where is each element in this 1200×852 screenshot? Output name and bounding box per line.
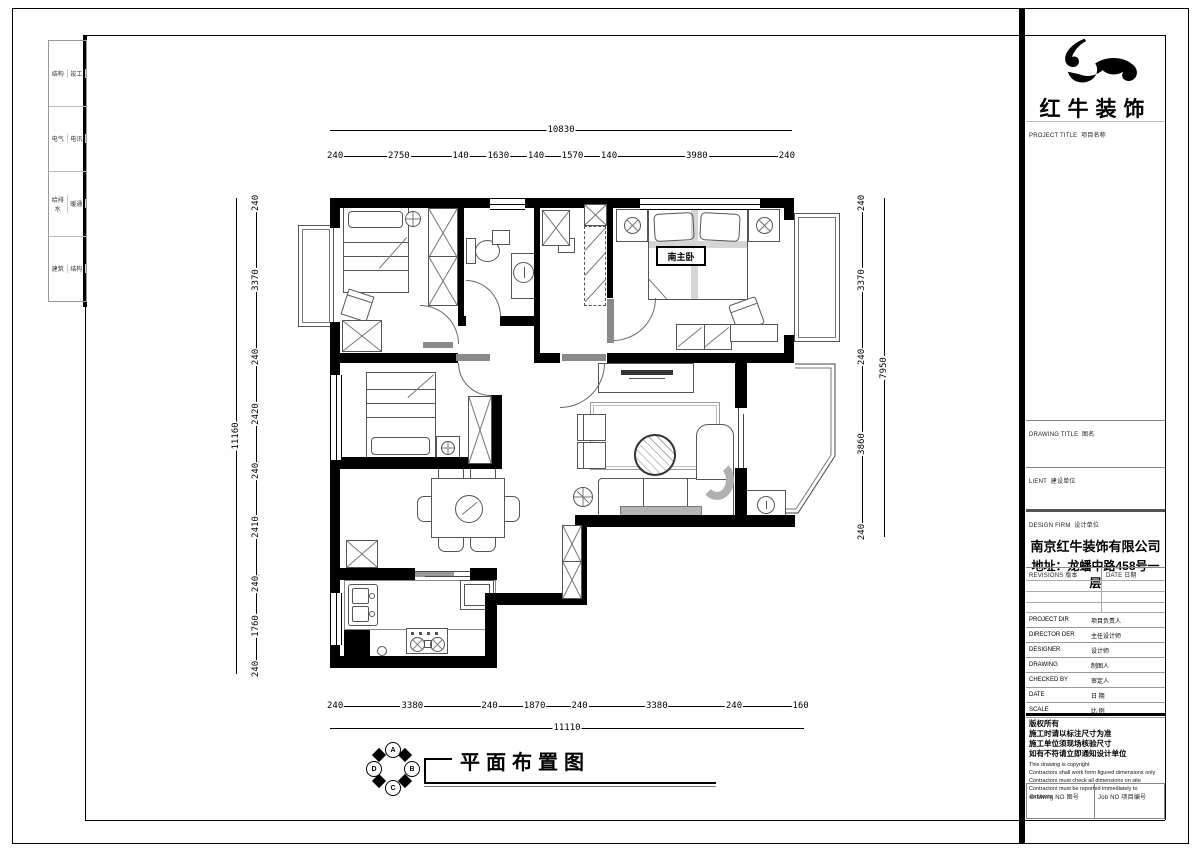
drawing-sheet: { "sheet": { "drawing_title": "平面布置图", "… bbox=[0, 0, 1200, 852]
title-block: 红牛装饰 PROJECT TITLE 项目名称 DRAWING TITLE 图名… bbox=[1026, 35, 1165, 820]
dimension-value: 240 bbox=[480, 701, 498, 711]
room-label-master: 南主卧 bbox=[656, 246, 706, 266]
dimension-value: 240 bbox=[857, 523, 867, 541]
dimension-value: 1870 bbox=[523, 701, 547, 711]
cabinet bbox=[584, 204, 607, 226]
signature-row: DRAWING制图人 bbox=[1026, 658, 1165, 673]
armchair-living bbox=[577, 442, 606, 469]
dimension-value: 240 bbox=[857, 348, 867, 366]
compass-icon: A B C D bbox=[366, 742, 420, 796]
wall-segment bbox=[534, 353, 560, 363]
floor-plan: 南主卧 bbox=[0, 0, 1200, 852]
wall-segment bbox=[607, 208, 613, 298]
window bbox=[330, 593, 342, 645]
cabinet bbox=[342, 320, 382, 352]
signature-row: PROJECT DIR项目负责人 bbox=[1026, 613, 1165, 628]
title-underline-2 bbox=[424, 786, 716, 787]
armchair-living bbox=[577, 414, 606, 441]
tv-cabinet bbox=[598, 363, 694, 393]
dimension-value: 2420 bbox=[251, 402, 261, 426]
wall-segment bbox=[458, 208, 464, 326]
title-underline bbox=[424, 782, 716, 784]
dimension-value: 240 bbox=[326, 151, 344, 161]
gas-stove bbox=[406, 628, 448, 654]
window bbox=[640, 198, 760, 210]
sliding-door bbox=[415, 571, 470, 572]
window bbox=[330, 375, 342, 460]
dimension-value: 3370 bbox=[251, 268, 261, 292]
wall-segment bbox=[470, 568, 497, 580]
cabinet bbox=[562, 561, 582, 599]
date-column-label: DATE 日期 bbox=[1102, 568, 1137, 580]
dimension-value: 140 bbox=[600, 151, 618, 161]
nightstand-right bbox=[748, 209, 780, 242]
wall-segment bbox=[330, 656, 497, 668]
sliding-door bbox=[425, 576, 470, 577]
wall-segment bbox=[525, 198, 640, 208]
dining-chair bbox=[503, 496, 520, 522]
dresser-master bbox=[676, 324, 732, 350]
entry-tall-cabinet-dashed bbox=[584, 226, 606, 306]
coffee-table bbox=[634, 434, 676, 476]
dimension-value: 1570 bbox=[561, 151, 585, 161]
sliding-door bbox=[738, 408, 739, 468]
door-sill bbox=[456, 354, 490, 361]
dimension-value: 240 bbox=[778, 151, 796, 161]
dimension-total-value: 11110 bbox=[552, 723, 581, 733]
sliding-door bbox=[743, 414, 744, 468]
dimension-value: 240 bbox=[251, 194, 261, 212]
dimension-value: 140 bbox=[527, 151, 545, 161]
revision-row bbox=[1026, 591, 1165, 602]
door-sill bbox=[562, 354, 606, 361]
dimension-value: 240 bbox=[251, 574, 261, 592]
cabinet bbox=[346, 540, 378, 568]
dimension-value: 240 bbox=[251, 660, 261, 678]
cabinet bbox=[428, 256, 458, 306]
dimension-value: 1760 bbox=[251, 614, 261, 638]
floor-drain-icon bbox=[377, 646, 387, 656]
cabinet bbox=[428, 208, 458, 258]
dimension-total-value: 7950 bbox=[879, 356, 889, 380]
sheet-title: 平面布置图 bbox=[460, 746, 590, 775]
wall-segment bbox=[458, 316, 466, 326]
dimension-value: 240 bbox=[251, 461, 261, 479]
dresser-shelf-master bbox=[730, 324, 778, 342]
signature-row: DESIGNER设计师 bbox=[1026, 643, 1165, 658]
dimension-value: 2410 bbox=[251, 515, 261, 539]
window bbox=[490, 198, 525, 210]
wall-segment bbox=[607, 353, 794, 363]
wall-segment bbox=[330, 353, 458, 363]
brand-name: 红牛装饰 bbox=[1026, 93, 1165, 123]
revision-row bbox=[1026, 602, 1165, 613]
sofa-arm-curve bbox=[700, 460, 734, 500]
dimension-value: 240 bbox=[725, 701, 743, 711]
wall-segment bbox=[583, 515, 795, 527]
wall-segment bbox=[330, 198, 490, 208]
dimension-value: 3380 bbox=[400, 701, 424, 711]
dimension-value: 240 bbox=[251, 348, 261, 366]
title-corner-mark bbox=[424, 758, 452, 784]
revision-row bbox=[1026, 580, 1165, 591]
dimension-value: 3370 bbox=[857, 268, 867, 292]
door-sill bbox=[423, 342, 453, 348]
signature-rows: PROJECT DIR项目负责人DIRECTOR DER主任设计师DESIGNE… bbox=[1026, 613, 1165, 718]
nightstand-middle bbox=[436, 436, 460, 459]
wall-segment bbox=[500, 316, 540, 326]
wall-segment bbox=[735, 468, 747, 515]
dimension-total-value: 10830 bbox=[546, 125, 575, 135]
dimension-value: 240 bbox=[326, 701, 344, 711]
dimension-line bbox=[862, 198, 863, 537]
dimension-value: 3380 bbox=[645, 701, 669, 711]
door-sill bbox=[607, 299, 614, 343]
dimension-total-value: 11160 bbox=[231, 421, 241, 450]
nightstand-left bbox=[616, 209, 648, 242]
company-logo-icon bbox=[1044, 37, 1148, 95]
dimension-value: 140 bbox=[451, 151, 469, 161]
cabinet bbox=[468, 396, 492, 464]
kitchen-sink bbox=[348, 584, 378, 626]
floor-lamp-icon bbox=[573, 487, 593, 507]
cabinet bbox=[542, 210, 570, 246]
client-label: LIENT 建设单位 bbox=[1029, 479, 1076, 485]
dimension-value: 1630 bbox=[486, 151, 510, 161]
dimension-value: 2750 bbox=[387, 151, 411, 161]
bath-shelf bbox=[492, 230, 510, 245]
dining-table bbox=[431, 478, 505, 538]
ceiling-light-icon bbox=[405, 211, 421, 227]
drawing-no-cell: Drawing NO 图号 bbox=[1027, 784, 1095, 818]
signature-row: DIRECTOR DER主任设计师 bbox=[1026, 628, 1165, 643]
firm-name: 南京红牛装饰有限公司 bbox=[1029, 536, 1162, 555]
dimension-value: 240 bbox=[570, 701, 588, 711]
dimension-value: 3980 bbox=[685, 151, 709, 161]
bed-middle bbox=[366, 372, 436, 462]
wall-segment bbox=[330, 568, 415, 580]
wall-segment bbox=[784, 198, 794, 220]
duct-shaft bbox=[344, 630, 370, 656]
wall-segment bbox=[735, 363, 747, 408]
cabinet bbox=[562, 525, 582, 563]
revisions-label: REVISIONS 版本 bbox=[1026, 568, 1102, 580]
drawing-title-label: DRAWING TITLE 图名 bbox=[1029, 432, 1094, 438]
dimension-value: 240 bbox=[857, 194, 867, 212]
dimension-value: 160 bbox=[791, 701, 809, 711]
signature-row: CHECKED BY审定人 bbox=[1026, 673, 1165, 688]
project-title-label: PROJECT TITLE 项目名称 bbox=[1029, 133, 1106, 139]
copyright-chinese: 版权所有施工时请以标注尺寸为准施工单位须现场核验尺寸如有不符请立即通知设计单位 bbox=[1029, 719, 1162, 759]
wall-segment bbox=[330, 198, 340, 228]
dimension-value: 3860 bbox=[857, 433, 867, 457]
signature-row: DATE日 期 bbox=[1026, 688, 1165, 703]
wall-segment bbox=[534, 208, 540, 353]
washbasin-icon bbox=[513, 262, 534, 283]
design-firm-label: DESIGN FIRM 设计单位 bbox=[1029, 523, 1099, 529]
wall-segment bbox=[330, 322, 340, 375]
job-no-cell: Job NO 项目编号 bbox=[1095, 784, 1164, 818]
bed-single bbox=[343, 207, 409, 293]
